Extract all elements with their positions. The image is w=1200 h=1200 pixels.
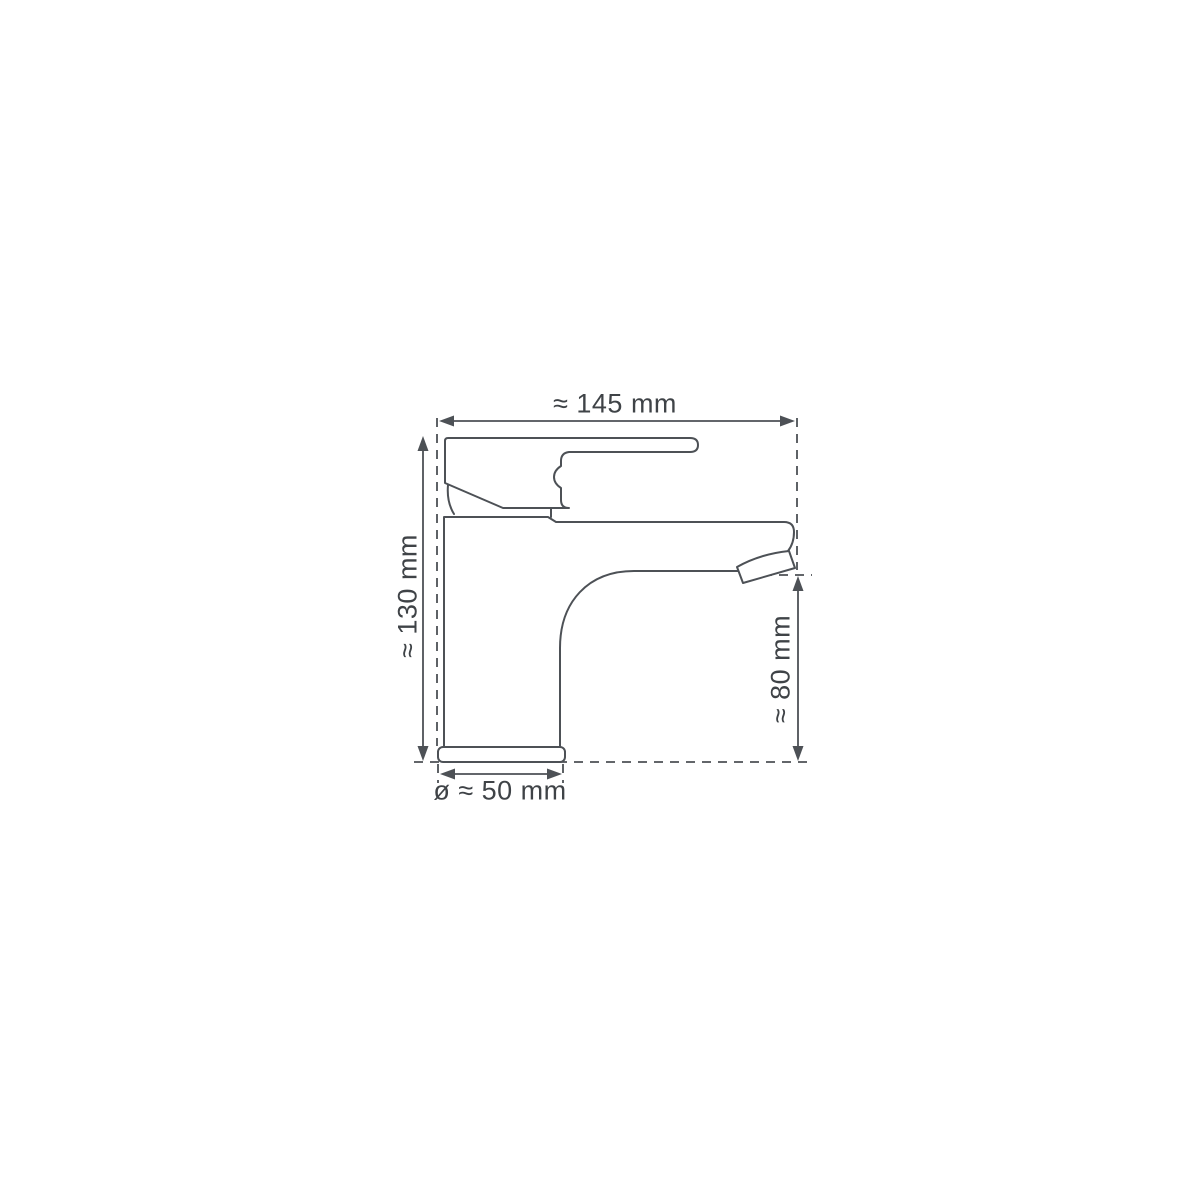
arrow-width-right [780, 416, 795, 427]
base-diameter-dimension-label: ø ≈ 50 mm [433, 776, 566, 807]
spout-height-dimension-label: ≈ 80 mm [766, 615, 797, 723]
faucet-outline [438, 438, 795, 762]
arrow-spout-bottom [793, 746, 804, 761]
height-dimension-label: ≈ 130 mm [393, 534, 424, 658]
arrow-height-bottom [418, 746, 429, 761]
technical-drawing-canvas: ≈ 145 mm ≈ 130 mm ≈ 80 mm ø ≈ 50 mm [0, 0, 1200, 1200]
arrow-width-left [439, 416, 454, 427]
arrow-height-top [418, 436, 429, 451]
faucet-base-plinth [438, 747, 565, 762]
faucet-pivot-arc [448, 485, 454, 514]
faucet-aerator [737, 551, 795, 583]
faucet-spout-underside [560, 571, 739, 747]
width-dimension-label: ≈ 145 mm [553, 389, 677, 420]
faucet-handle [445, 438, 698, 508]
faucet-body [444, 517, 794, 747]
faucet-line-drawing [0, 0, 1200, 1200]
arrow-spout-top [793, 576, 804, 591]
